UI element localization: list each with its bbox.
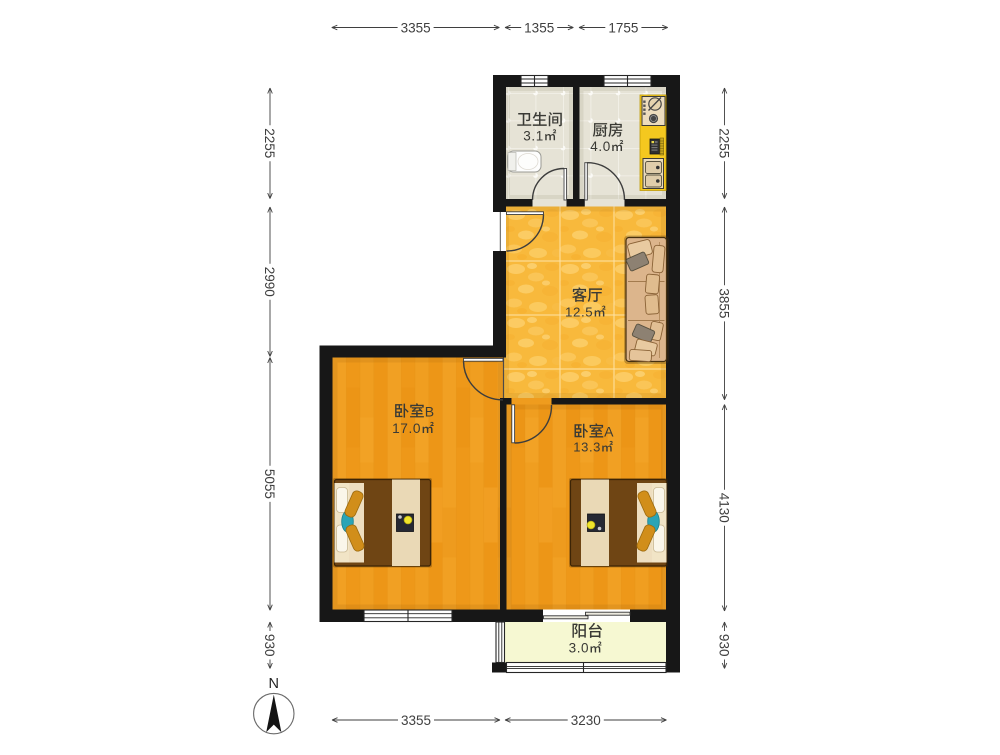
svg-text:1755: 1755 bbox=[608, 20, 638, 35]
svg-text:N: N bbox=[269, 676, 279, 692]
svg-text:2255: 2255 bbox=[262, 128, 277, 158]
svg-text:4130: 4130 bbox=[717, 493, 732, 523]
svg-text:3355: 3355 bbox=[401, 20, 431, 35]
svg-text:2255: 2255 bbox=[717, 128, 732, 158]
svg-text:5055: 5055 bbox=[262, 469, 277, 499]
svg-text:12.5: 12.5 bbox=[565, 305, 593, 320]
svg-text:3.0: 3.0 bbox=[569, 641, 590, 656]
svg-text:930: 930 bbox=[717, 634, 732, 657]
svg-text:1355: 1355 bbox=[524, 20, 554, 35]
svg-text:17.0: 17.0 bbox=[392, 421, 421, 436]
svg-text:A: A bbox=[604, 424, 614, 440]
svg-text:13.3: 13.3 bbox=[573, 440, 601, 455]
svg-text:3230: 3230 bbox=[571, 713, 601, 728]
svg-text:4.0: 4.0 bbox=[590, 139, 611, 154]
svg-text:3.1: 3.1 bbox=[523, 128, 544, 143]
svg-text:B: B bbox=[425, 404, 435, 420]
svg-text:930: 930 bbox=[262, 634, 277, 657]
svg-text:2990: 2990 bbox=[262, 267, 277, 297]
svg-text:3355: 3355 bbox=[401, 713, 431, 728]
svg-text:3855: 3855 bbox=[717, 288, 732, 318]
